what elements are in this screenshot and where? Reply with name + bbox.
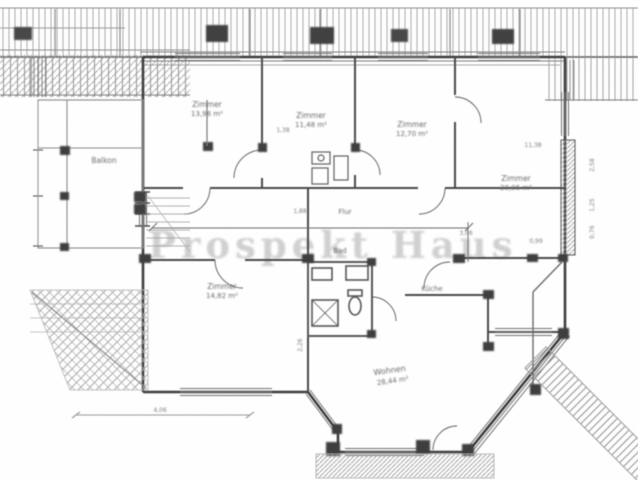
scanned-floor-plan-page: Prospekt Haus: [0, 0, 638, 480]
scan-noise-overlay: [0, 0, 638, 480]
floor-plan-drawing: Prospekt Haus: [0, 0, 638, 480]
